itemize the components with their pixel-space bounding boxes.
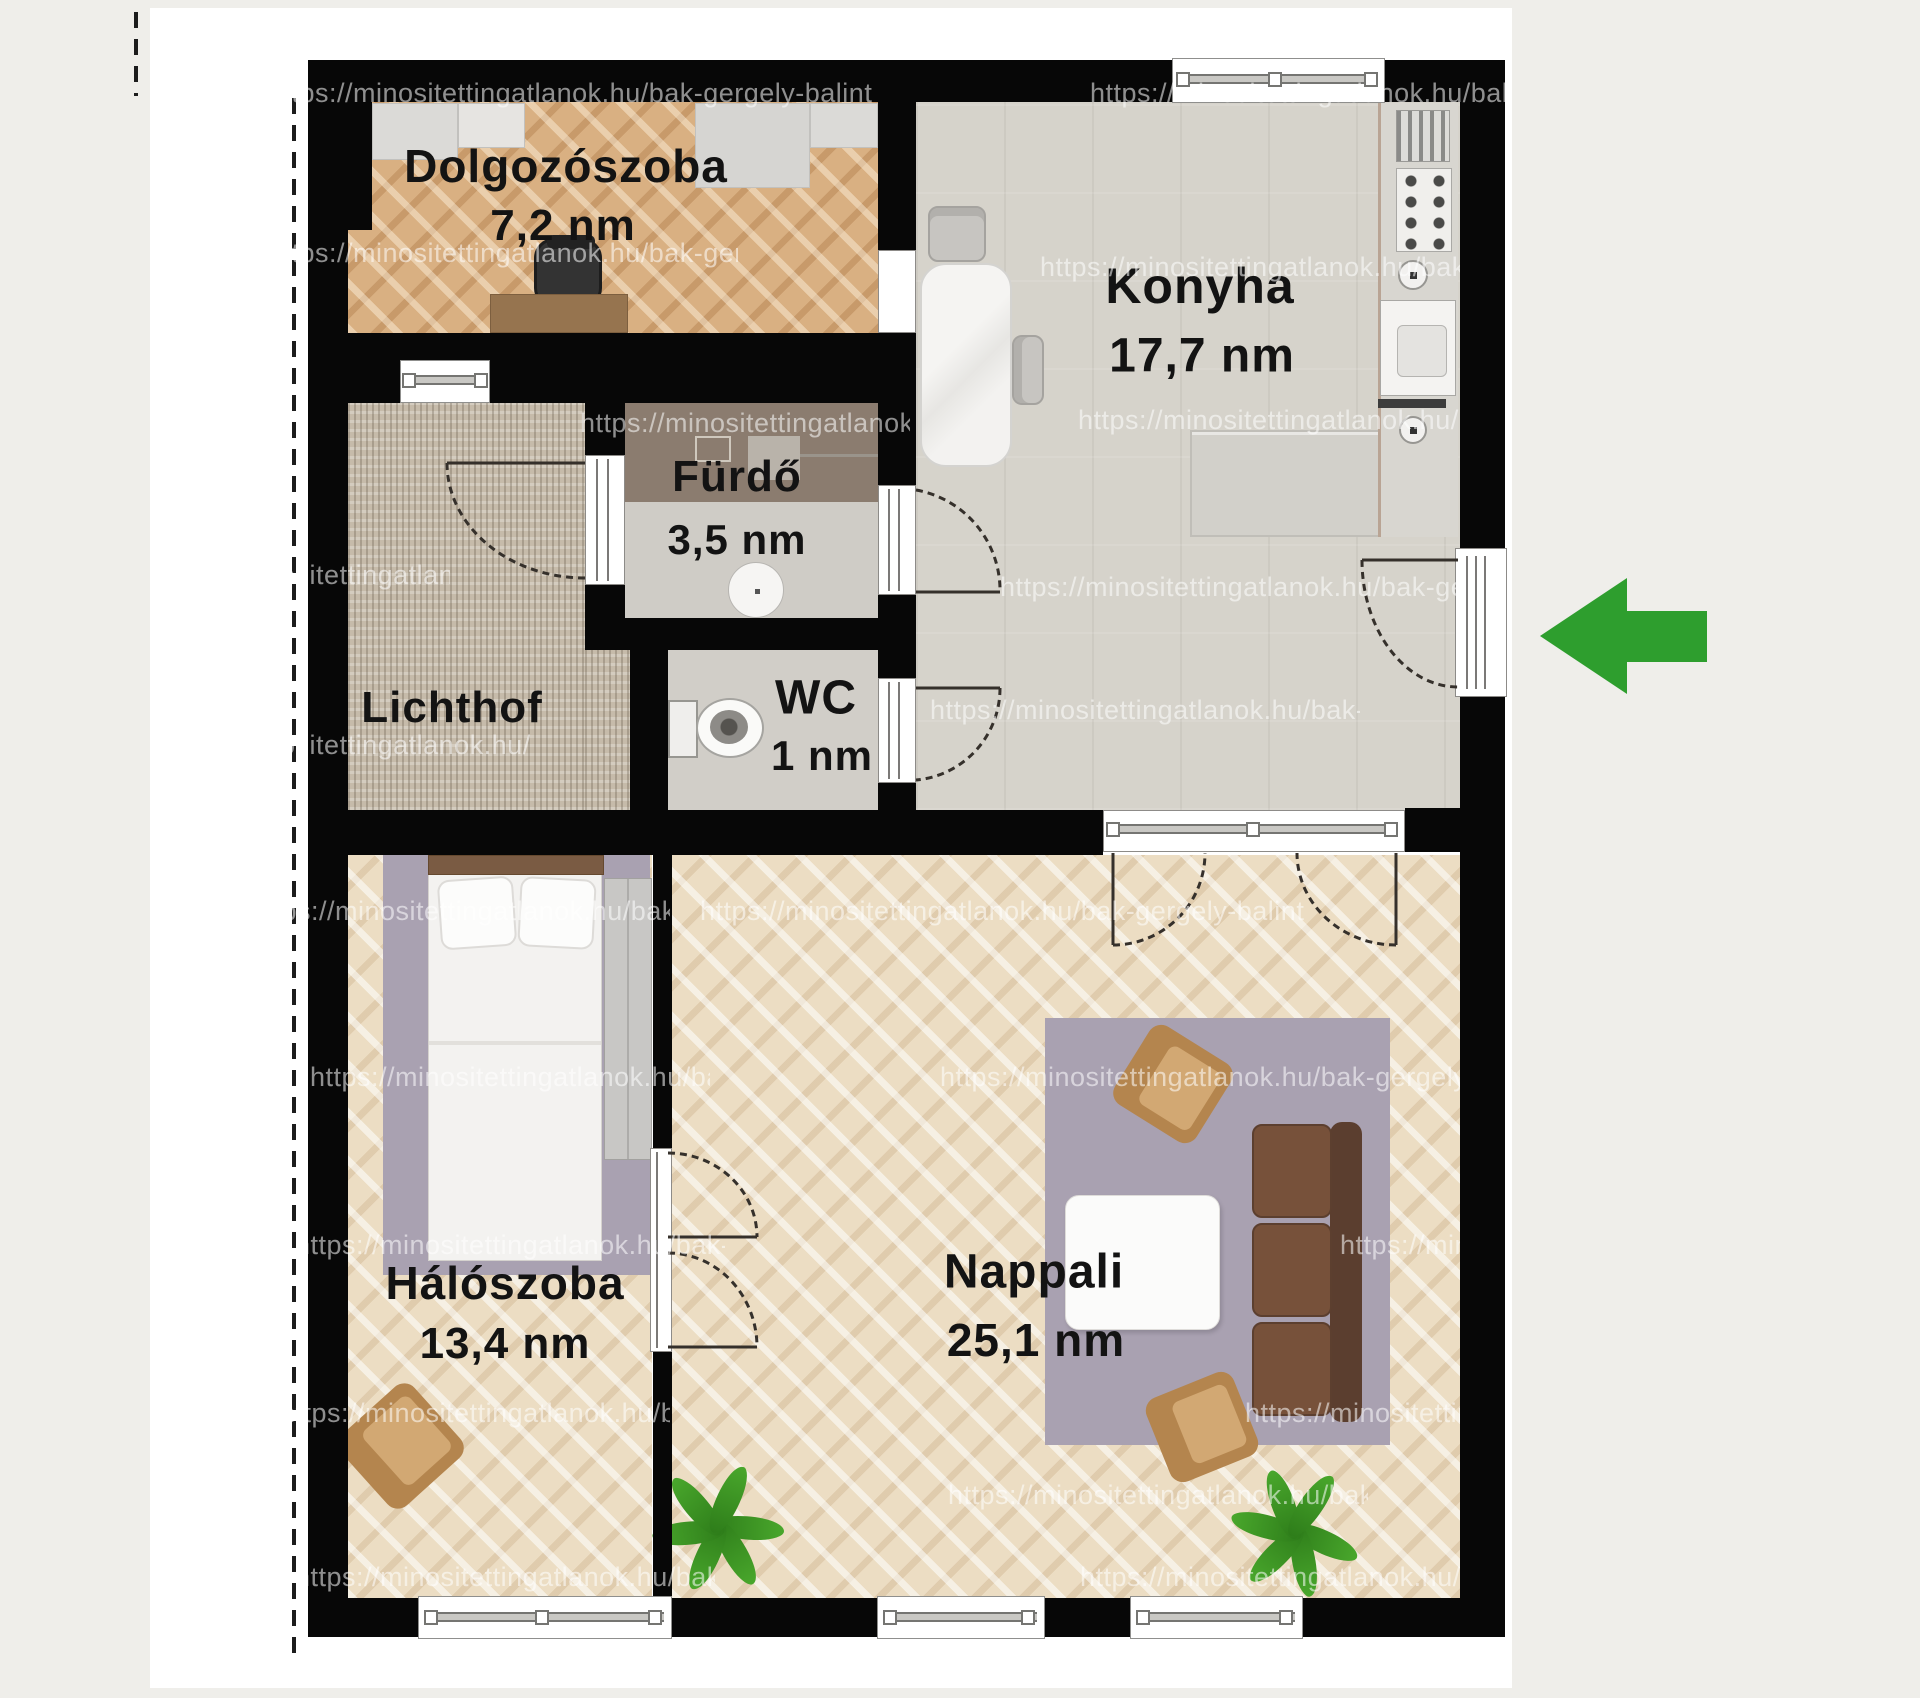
wall-bath-hall (878, 783, 916, 810)
dining-chair (1012, 335, 1044, 405)
watermark: https://minositettingatlanok.hu/bak-gerg… (948, 1480, 1368, 1511)
dining-chair (928, 206, 986, 262)
dining-table (920, 263, 1012, 467)
wall-bottom (1045, 1598, 1130, 1637)
door-bath-jamb (898, 489, 900, 591)
toilet-bowl-inner (710, 710, 748, 744)
toilet-tank (668, 700, 698, 758)
watermark: https://minositettingatlanok.hu/bak-gerg… (1245, 1398, 1460, 1429)
wall-right-upper (1460, 102, 1505, 552)
window-glass (885, 1612, 1037, 1622)
door-entry-leaf (1484, 556, 1486, 689)
door-entry (1455, 548, 1507, 697)
wall-bedroom-top (308, 810, 1103, 855)
sofa-cushion (1252, 1124, 1332, 1218)
door-lichthof-jamb (596, 459, 598, 581)
watermark: https://minositettingatlanok.hu/bak-gerg… (310, 1062, 710, 1093)
wall-wc-left (630, 650, 668, 810)
french-door-post (1384, 822, 1398, 837)
watermark: https://minositettingatlanok.hu/bak-gerg… (1340, 1230, 1460, 1261)
wall-bath-hall (878, 595, 916, 678)
window-post (1021, 1610, 1035, 1625)
sink-dot (755, 589, 760, 594)
french-door-post (1246, 822, 1260, 837)
door-entry-leaf (1475, 556, 1477, 689)
sofa-cushion (1252, 1223, 1332, 1317)
label-dolgozoszoba: Dolgozószoba (404, 139, 728, 193)
blanket-fold (429, 1041, 601, 1045)
window-post (424, 1610, 438, 1625)
watermark: https://minositettingatlanok.hu/bak-gerg… (1080, 1562, 1460, 1593)
door-bath-jamb (888, 489, 890, 591)
wall-bottom-right-corner (1303, 1598, 1505, 1637)
window-glass (406, 375, 484, 385)
label-wc-area: 1 nm (771, 732, 873, 780)
kitchen-sink (1380, 300, 1456, 396)
watermark: https://minositettingatlanok.hu/bak-gerg… (280, 1398, 670, 1429)
wall-bath-wc (585, 618, 878, 650)
window-post (1136, 1610, 1150, 1625)
window-post (474, 373, 488, 388)
door-wc (878, 678, 916, 783)
entry-arrow (1540, 578, 1707, 694)
label-haloszoba: Hálószoba (385, 1256, 624, 1310)
watermark: https://minositettingatlanok.hu/bak-gerg… (700, 896, 1460, 927)
watermark: https://minositettingatlanok.hu/bak-gerg… (295, 1562, 715, 1593)
label-nappali: Nappali (944, 1245, 1124, 1300)
door-wc-jamb (898, 682, 900, 779)
wall-bottom (672, 1598, 877, 1637)
door-study (878, 250, 916, 333)
watermark: https://minositettingatlanok.hu/bak-gerg… (150, 560, 450, 591)
watermark: https://minositettingatlanok.hu/bak-gerg… (268, 78, 1028, 109)
label-furdo-area: 3,5 nm (667, 516, 806, 564)
door-lichthof (585, 455, 625, 585)
watermark: https://minositettingatlanok.hu/bak-gerg… (1040, 252, 1460, 283)
sofa-back (1330, 1122, 1362, 1422)
toilet-bowl-icon (696, 698, 764, 758)
watermark: https://minositettingatlanok.hu/bak-gerg… (250, 896, 670, 927)
watermark: https://minositettingatlanok.hu/bak-gerg… (1000, 572, 1458, 603)
door-bath (878, 485, 916, 595)
window-post (648, 1610, 662, 1625)
study-cabinet (810, 103, 878, 148)
label-furdo: Fürdő (672, 452, 802, 502)
sofa (1250, 1122, 1362, 1422)
watermark: https://minositettingatlanok.hu/bak-gerg… (268, 238, 738, 269)
coffee-machine (1396, 110, 1450, 162)
window-post (535, 1610, 549, 1625)
window-glass (1138, 1612, 1295, 1622)
french-door-post (1106, 822, 1120, 837)
door-wc-jamb (888, 682, 890, 779)
wall-left-nub (348, 102, 372, 230)
wall-lichthof-bath (585, 585, 625, 618)
door-entry-leaf (1466, 556, 1468, 689)
window-post (402, 373, 416, 388)
label-konyha-area: 17,7 nm (1109, 329, 1295, 384)
label-haloszoba-area: 13,4 nm (420, 1319, 591, 1369)
door-lichthof-jamb (607, 459, 609, 581)
floor-lichthof-ext (585, 650, 630, 810)
watermark: https://minositettingatlanok.hu/bak-gerg… (1090, 78, 1510, 109)
shower-arm (800, 454, 878, 457)
watermark: https://minositettingatlanok.hu/bak-gerg… (150, 730, 530, 761)
watermark: https://minositettingatlanok.hu/bak-gerg… (1078, 405, 1460, 436)
stove (1396, 168, 1452, 252)
wall-bottom (308, 1598, 418, 1637)
window-post (1279, 1610, 1293, 1625)
floor-plan-canvas: Dolgozószoba 7,2 nm Konyha 17,7 nm Fürdő… (0, 0, 1920, 1698)
label-nappali-area: 25,1 nm (947, 1313, 1125, 1367)
wall-stub-right-of-french-door (1405, 808, 1460, 852)
headboard (428, 855, 604, 875)
sink-basin (1397, 325, 1447, 377)
bath-sink-icon (728, 562, 784, 618)
wall-right-lower (1460, 697, 1505, 1637)
wall-study-kitchen (878, 102, 916, 250)
watermark: https://minositettingatlanok.hu/bak-gerg… (940, 1062, 1460, 1093)
study-desk (490, 294, 628, 333)
watermark: https://minositettingatlanok.hu/bak-gerg… (295, 1230, 725, 1261)
armchair-seat (1170, 1383, 1249, 1466)
wall-bedroom-living (653, 1350, 672, 1598)
window-post (883, 1610, 897, 1625)
watermark: https://minositettingatlanok.hu/bak-gerg… (930, 695, 1360, 726)
watermark: https://minositettingatlanok.hu/bak-gerg… (580, 408, 910, 439)
label-wc: WC (775, 671, 857, 726)
label-lichthof: Lichthof (361, 683, 543, 733)
